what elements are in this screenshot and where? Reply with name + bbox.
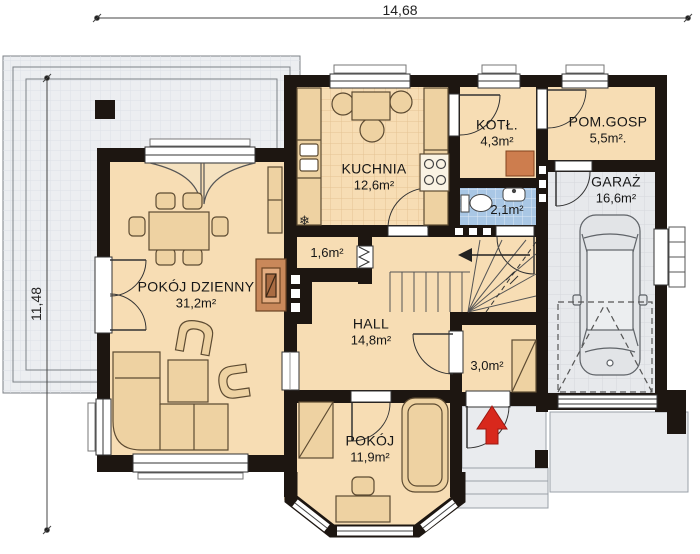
- dining-chair: [156, 193, 175, 209]
- room-label-hall: HALL 14,8m²: [351, 316, 391, 349]
- room-label-kuchnia: KUCHNIA 12,6m²: [341, 161, 406, 194]
- room-name: HALL: [351, 316, 391, 333]
- bedroom-door-opening: [351, 391, 391, 402]
- kitchen-chair: [390, 91, 412, 113]
- dining-chair: [212, 217, 228, 236]
- dining-chair: [129, 217, 145, 236]
- coffee-table: [168, 360, 208, 402]
- room-name: POM.GOSP: [569, 114, 648, 131]
- car-mirror: [639, 295, 647, 305]
- room-name: KOTŁ.: [476, 117, 518, 134]
- room-label-pokoj: POKÓJ 11,9m²: [346, 433, 395, 466]
- room-area: 4,3m²: [476, 134, 518, 150]
- kitchen-door-opening: [388, 226, 428, 236]
- car-roof: [587, 250, 633, 330]
- dining-chair: [156, 249, 175, 265]
- room-area: 11,9m²: [346, 450, 395, 466]
- entry-steps: [456, 468, 548, 508]
- room-name: KUCHNIA: [341, 161, 406, 178]
- stove: [420, 154, 449, 191]
- bed: [402, 398, 448, 492]
- boiler-door-opening: [449, 94, 459, 136]
- kitchen-chair: [360, 118, 384, 142]
- room-label-wc: 2,1m²: [490, 202, 523, 218]
- room-label-spizarka: 1,6m²: [310, 245, 343, 261]
- terrace-french-door-opening: [95, 257, 112, 333]
- utility-door-opening: [537, 89, 547, 129]
- toilet-tank: [461, 195, 469, 212]
- room-label-pom-gosp: POM.GOSP 5,5m².: [569, 114, 648, 147]
- dining-chair: [183, 193, 202, 209]
- toilet-bowl: [470, 195, 492, 212]
- floor-plan-drawing: ❄: [0, 0, 700, 554]
- room-name: POKÓJ DZIENNY: [138, 279, 255, 296]
- dining-table: [149, 212, 209, 250]
- kitchen-table: [352, 92, 390, 120]
- desk-chair: [352, 477, 374, 495]
- room-area: 14,8m²: [351, 333, 391, 349]
- room-name: POKÓJ: [346, 433, 395, 450]
- room-area: 5,5m².: [569, 131, 648, 147]
- room-name: GARAŻ: [591, 174, 641, 191]
- garage-inner-door-opening: [555, 161, 592, 171]
- room-label-garaz: GARAŻ 16,6m²: [591, 174, 641, 207]
- floor-plan-page: ❄: [0, 0, 700, 554]
- entrance-door-opening: [466, 391, 510, 407]
- window-sill: [334, 65, 406, 73]
- car-mirror: [573, 295, 581, 305]
- room-area: 31,2m²: [138, 296, 255, 312]
- wc-door-opening: [496, 226, 534, 236]
- garage-door: [558, 395, 657, 408]
- room-label-pokoj-dzienny: POKÓJ DZIENNY 31,2m²: [138, 279, 255, 312]
- terrace-column: [95, 100, 115, 119]
- room-area: 12,6m²: [341, 178, 406, 194]
- kitchen-sink: [300, 144, 318, 156]
- kitchen-chair: [332, 93, 354, 115]
- dimension-width: 14,68: [382, 2, 417, 18]
- dining-chair: [183, 249, 202, 265]
- room-area: 16,6m²: [591, 191, 641, 207]
- vestibule-door-opening: [449, 331, 463, 373]
- room-area: 1,6m²: [310, 245, 343, 261]
- room-area: 2,1m²: [490, 202, 523, 218]
- fridge-snowflake-icon: ❄: [299, 213, 310, 228]
- room-area: 3,0m²: [470, 358, 503, 374]
- dimension-height: 11,48: [28, 287, 44, 321]
- room-label-kotlownia: KOTŁ. 4,3m²: [476, 117, 518, 150]
- garage-side-door-opening: [654, 229, 668, 285]
- desk: [336, 496, 390, 522]
- room-label-wiatrolap: 3,0m²: [470, 358, 503, 374]
- boiler: [506, 151, 534, 176]
- entry-porch: [462, 406, 546, 468]
